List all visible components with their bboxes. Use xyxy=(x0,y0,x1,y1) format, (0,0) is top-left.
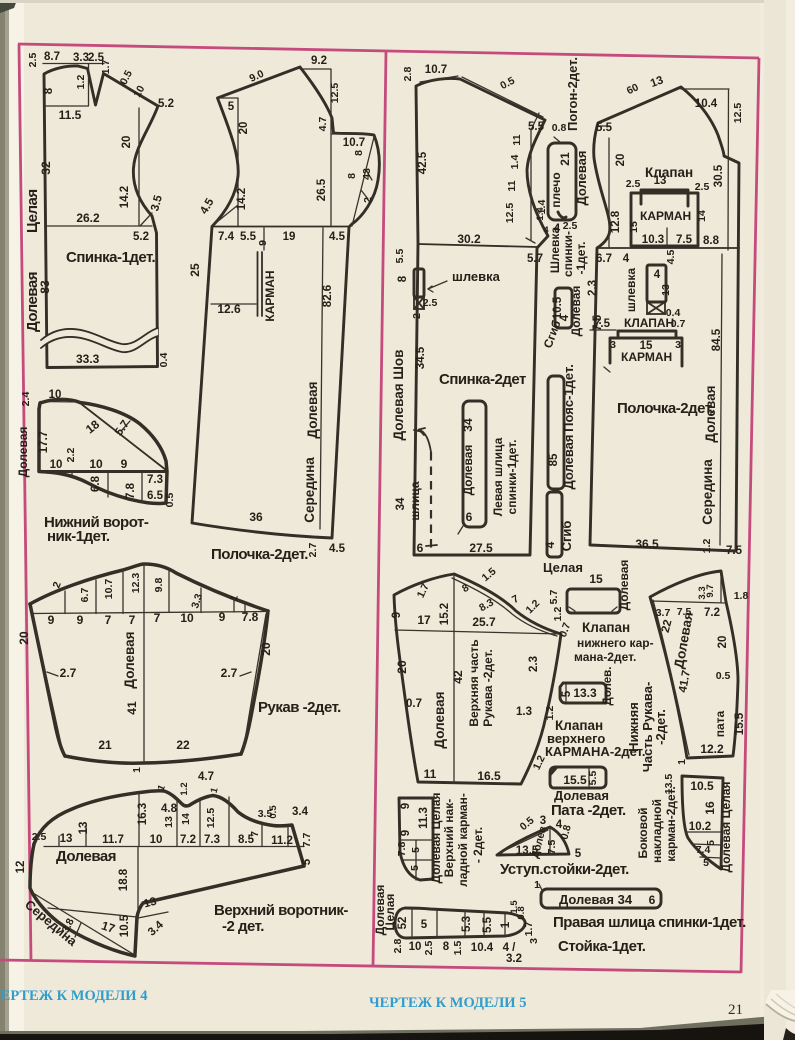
svg-text:10: 10 xyxy=(49,389,62,401)
svg-text:Стойка-1дет.: Стойка-1дет. xyxy=(558,938,646,955)
svg-text:1: 1 xyxy=(676,759,688,765)
svg-text:ладной карман-: ладной карман- xyxy=(456,793,470,887)
svg-text:9.2: 9.2 xyxy=(311,55,327,67)
svg-text:21: 21 xyxy=(728,1002,743,1018)
svg-text:36.5: 36.5 xyxy=(635,537,659,551)
svg-text:-1дет.: -1дет. xyxy=(574,242,588,275)
svg-text:8: 8 xyxy=(443,941,450,953)
svg-text:Долевая: Долевая xyxy=(561,435,576,490)
svg-text:16: 16 xyxy=(703,801,717,815)
svg-text:Долевая: Долевая xyxy=(554,788,609,803)
svg-text:52: 52 xyxy=(397,917,409,930)
svg-text:9: 9 xyxy=(400,830,412,836)
svg-text:накладной: накладной xyxy=(650,799,664,863)
svg-text:14: 14 xyxy=(180,813,192,825)
svg-text:плечо: плечо xyxy=(549,172,563,207)
svg-text:25.7: 25.7 xyxy=(472,615,496,629)
svg-text:5.2: 5.2 xyxy=(133,231,149,243)
svg-text:4: 4 xyxy=(654,269,661,281)
svg-text:3.7: 3.7 xyxy=(656,607,671,619)
svg-text:5.5: 5.5 xyxy=(596,122,613,134)
svg-text:7: 7 xyxy=(249,831,261,837)
svg-text:3.3: 3.3 xyxy=(73,52,89,64)
svg-text:8.8: 8.8 xyxy=(703,235,720,247)
svg-text:2: 2 xyxy=(411,313,423,319)
svg-text:26.2: 26.2 xyxy=(76,211,100,225)
svg-text:Целая: Целая xyxy=(24,189,41,233)
svg-text:42.5: 42.5 xyxy=(417,151,429,174)
svg-text:1: 1 xyxy=(500,921,512,928)
svg-text:Долевая Целая: Долевая Целая xyxy=(429,793,443,884)
svg-text:Рукава -2дет.: Рукава -2дет. xyxy=(481,649,495,727)
svg-text:2.7: 2.7 xyxy=(307,543,319,558)
svg-text:20: 20 xyxy=(717,636,729,649)
svg-text:-2дет.: -2дет. xyxy=(653,709,668,745)
svg-text:1.3: 1.3 xyxy=(516,706,532,718)
svg-text:3: 3 xyxy=(528,938,540,944)
svg-text:9: 9 xyxy=(219,610,226,624)
svg-text:15.2: 15.2 xyxy=(439,603,451,625)
svg-text:9: 9 xyxy=(400,803,412,809)
svg-text:Левая шлица: Левая шлица xyxy=(491,437,505,516)
svg-text:3.2: 3.2 xyxy=(506,953,522,965)
svg-text:15.5: 15.5 xyxy=(563,773,587,787)
svg-text:11: 11 xyxy=(511,134,523,145)
svg-text:15: 15 xyxy=(640,340,653,352)
svg-text:Долевая: Долевая xyxy=(617,560,631,611)
svg-text:6.8: 6.8 xyxy=(90,475,102,492)
svg-text:20: 20 xyxy=(17,631,31,645)
svg-text:Пояс-1дет.: Пояс-1дет. xyxy=(561,364,576,432)
svg-text:4.7: 4.7 xyxy=(317,117,329,132)
svg-text:Долевая: Долевая xyxy=(461,445,475,496)
svg-text:7.7: 7.7 xyxy=(301,833,313,848)
svg-text:шлевка: шлевка xyxy=(624,268,638,313)
svg-text:1.2: 1.2 xyxy=(701,539,713,554)
svg-text:8: 8 xyxy=(397,275,409,282)
svg-text:10.5: 10.5 xyxy=(690,779,714,793)
svg-text:10: 10 xyxy=(89,457,103,471)
svg-text:12.8: 12.8 xyxy=(610,210,622,233)
svg-text:1.2: 1.2 xyxy=(552,607,564,622)
svg-text:10.5: 10.5 xyxy=(119,914,131,937)
svg-text:10: 10 xyxy=(50,459,63,471)
svg-text:4.5: 4.5 xyxy=(665,250,677,265)
svg-text:7.3: 7.3 xyxy=(204,834,220,846)
svg-text:12.2: 12.2 xyxy=(700,742,724,756)
svg-text:2.8: 2.8 xyxy=(402,67,414,82)
svg-text:42: 42 xyxy=(451,670,465,684)
svg-text:5: 5 xyxy=(409,865,421,871)
svg-text:7.8: 7.8 xyxy=(242,610,259,624)
svg-text:Спинка-2дет: Спинка-2дет xyxy=(439,371,526,388)
svg-text:0.5: 0.5 xyxy=(716,670,731,682)
svg-text:5: 5 xyxy=(228,101,235,113)
svg-text:1.8: 1.8 xyxy=(734,590,749,602)
svg-text:7.5: 7.5 xyxy=(676,234,693,246)
svg-text:7.8: 7.8 xyxy=(396,842,408,857)
svg-text:6.5: 6.5 xyxy=(147,490,164,502)
svg-text:12.6: 12.6 xyxy=(217,302,241,316)
svg-text:6: 6 xyxy=(649,893,656,907)
svg-text:1.4: 1.4 xyxy=(509,155,521,170)
svg-text:6.7: 6.7 xyxy=(596,253,612,265)
svg-text:4.5: 4.5 xyxy=(329,543,346,555)
svg-text:8.7: 8.7 xyxy=(44,51,60,63)
svg-text:Полочка-2дет.: Полочка-2дет. xyxy=(617,400,714,417)
svg-text:5.5: 5.5 xyxy=(394,249,406,264)
svg-text:Долевая: Долевая xyxy=(432,691,447,748)
svg-text:41: 41 xyxy=(125,701,139,715)
svg-text:11: 11 xyxy=(424,767,437,781)
svg-text:7.2: 7.2 xyxy=(704,607,720,619)
svg-text:13: 13 xyxy=(163,816,175,828)
svg-text:5.7: 5.7 xyxy=(548,590,560,605)
svg-text:34: 34 xyxy=(461,418,475,432)
svg-text:5: 5 xyxy=(561,690,573,697)
svg-text:Долевая Шов: Долевая Шов xyxy=(391,350,406,441)
svg-text:КАРМАН: КАРМАН xyxy=(640,209,691,223)
svg-text:12.5: 12.5 xyxy=(504,203,516,224)
svg-text:22: 22 xyxy=(176,738,190,752)
svg-text:25: 25 xyxy=(188,263,202,277)
svg-text:13: 13 xyxy=(60,833,73,845)
svg-text:2.3: 2.3 xyxy=(528,656,540,672)
svg-text:Погон-2дет.: Погон-2дет. xyxy=(565,57,580,131)
svg-text:9: 9 xyxy=(391,612,403,618)
svg-text:4.5: 4.5 xyxy=(329,231,346,243)
svg-text:10.2: 10.2 xyxy=(689,821,711,833)
svg-text:36: 36 xyxy=(249,510,263,524)
svg-text:7.2: 7.2 xyxy=(180,834,196,846)
svg-text:Середина: Середина xyxy=(700,459,715,525)
svg-text:2.7: 2.7 xyxy=(60,666,77,680)
svg-text:6: 6 xyxy=(417,541,424,555)
svg-text:15: 15 xyxy=(628,221,640,233)
svg-text:Спинка-1дет.: Спинка-1дет. xyxy=(66,249,156,266)
svg-text:11.5: 11.5 xyxy=(59,108,82,122)
svg-text:Нижняя: Нижняя xyxy=(626,702,641,752)
svg-text:3.4: 3.4 xyxy=(292,806,309,818)
svg-text:17: 17 xyxy=(417,613,431,627)
svg-text:43: 43 xyxy=(361,168,373,180)
svg-text:Долевая: Долевая xyxy=(56,848,116,865)
svg-text:нижнего кар-: нижнего кар- xyxy=(577,636,654,650)
svg-text:13: 13 xyxy=(78,822,90,835)
svg-text:2.4: 2.4 xyxy=(20,392,32,407)
svg-text:Верхний нак-: Верхний нак- xyxy=(442,799,456,877)
svg-text:1.4: 1.4 xyxy=(536,200,548,215)
svg-text:7.5: 7.5 xyxy=(726,545,743,557)
svg-text:82.6: 82.6 xyxy=(322,285,334,307)
svg-text:7: 7 xyxy=(105,613,112,627)
svg-text:1.2: 1.2 xyxy=(179,782,190,795)
svg-text:2.5: 2.5 xyxy=(27,53,39,68)
svg-text:2.5: 2.5 xyxy=(423,297,438,309)
svg-text:13.3: 13.3 xyxy=(573,686,597,700)
svg-text:3: 3 xyxy=(610,339,616,351)
svg-text:5.5: 5.5 xyxy=(240,231,257,243)
svg-text:12.5: 12.5 xyxy=(329,83,341,104)
svg-text:5.5: 5.5 xyxy=(482,916,494,933)
svg-text:20: 20 xyxy=(259,642,273,656)
svg-text:33.3: 33.3 xyxy=(76,352,100,366)
svg-text:85: 85 xyxy=(548,453,560,466)
svg-text:1.7: 1.7 xyxy=(100,60,112,75)
svg-text:5: 5 xyxy=(301,858,313,865)
svg-text:7.5: 7.5 xyxy=(546,840,558,855)
svg-text:15: 15 xyxy=(589,572,603,586)
svg-text:7.3: 7.3 xyxy=(147,474,163,486)
svg-text:20: 20 xyxy=(615,154,627,167)
svg-text:14: 14 xyxy=(696,210,708,222)
svg-text:1.5: 1.5 xyxy=(452,941,464,956)
svg-text:Долевая Целая: Долевая Целая xyxy=(719,782,733,873)
svg-text:10.4: 10.4 xyxy=(695,98,718,110)
svg-text:20: 20 xyxy=(395,660,409,674)
svg-text:5.3: 5.3 xyxy=(461,916,473,932)
svg-text:21: 21 xyxy=(98,738,112,752)
svg-text:19: 19 xyxy=(283,231,296,243)
svg-text:Клапан: Клапан xyxy=(582,620,630,635)
svg-text:9: 9 xyxy=(257,240,269,246)
svg-text:10: 10 xyxy=(409,941,422,953)
svg-text:34: 34 xyxy=(395,497,407,510)
svg-text:шлица: шлица xyxy=(408,481,422,521)
svg-text:1.7: 1.7 xyxy=(523,922,535,937)
svg-text:12.3: 12.3 xyxy=(130,573,142,594)
svg-text:2.8: 2.8 xyxy=(392,939,404,954)
svg-text:Рукав -2дет.: Рукав -2дет. xyxy=(258,699,341,716)
svg-text:карман-2дет.: карман-2дет. xyxy=(664,786,678,861)
svg-text:Правая шлица спинки-1дет.: Правая шлица спинки-1дет. xyxy=(553,914,746,931)
svg-text:ЧЕРТЕЖ К МОДЕЛИ 5: ЧЕРТЕЖ К МОДЕЛИ 5 xyxy=(369,995,526,1011)
svg-text:18.8: 18.8 xyxy=(118,868,130,891)
svg-text:2.5: 2.5 xyxy=(32,831,47,843)
svg-text:ЧЕРТЕЖ К МОДЕЛИ 4: ЧЕРТЕЖ К МОДЕЛИ 4 xyxy=(0,988,147,1004)
svg-text:Целая: Целая xyxy=(543,560,583,575)
svg-text:3: 3 xyxy=(675,339,681,351)
svg-text:1.2: 1.2 xyxy=(75,75,87,90)
svg-text:12: 12 xyxy=(15,861,27,874)
svg-text:10.7: 10.7 xyxy=(343,137,365,149)
svg-text:9.7: 9.7 xyxy=(705,584,716,597)
svg-text:Верхний воротник-: Верхний воротник- xyxy=(214,902,348,919)
svg-text:Полочка-2дет.: Полочка-2дет. xyxy=(211,546,308,563)
svg-text:20: 20 xyxy=(121,136,133,149)
svg-text:0.5: 0.5 xyxy=(164,493,176,508)
svg-text:5: 5 xyxy=(703,857,709,869)
svg-text:10.3: 10.3 xyxy=(642,234,664,246)
svg-text:16.3: 16.3 xyxy=(137,803,149,825)
svg-text:5: 5 xyxy=(705,840,717,846)
svg-text:11.2: 11.2 xyxy=(271,835,293,847)
svg-text:0.5: 0.5 xyxy=(268,805,279,819)
svg-text:Долевая: Долевая xyxy=(703,385,718,442)
svg-text:5.5: 5.5 xyxy=(528,121,545,133)
svg-text:3: 3 xyxy=(540,815,546,827)
svg-text:Пата -2дет.: Пата -2дет. xyxy=(551,802,626,819)
svg-text:Верхняя часть: Верхняя часть xyxy=(467,639,481,726)
svg-text:2: 2 xyxy=(362,197,374,203)
svg-text:Долевая: Долевая xyxy=(24,272,41,332)
svg-text:13: 13 xyxy=(660,284,672,296)
svg-text:12.5: 12.5 xyxy=(205,808,217,829)
svg-text:Клапан: Клапан xyxy=(645,165,693,180)
svg-text:Долевая 34: Долевая 34 xyxy=(559,892,633,907)
svg-text:14.2: 14.2 xyxy=(119,186,131,208)
svg-text:2.5: 2.5 xyxy=(695,181,710,193)
svg-text:Долевая: Долевая xyxy=(305,381,320,438)
svg-text:7: 7 xyxy=(129,613,136,627)
svg-text:Боковой: Боковой xyxy=(636,807,650,858)
svg-text:6: 6 xyxy=(466,510,473,524)
svg-text:- 2дет.: - 2дет. xyxy=(471,827,485,863)
svg-text:10.7: 10.7 xyxy=(425,64,447,76)
svg-text:Середина: Середина xyxy=(302,457,317,523)
svg-text:1: 1 xyxy=(131,767,143,773)
svg-text:27.5: 27.5 xyxy=(469,541,493,555)
svg-text:32: 32 xyxy=(39,161,53,175)
svg-text:8: 8 xyxy=(353,150,365,156)
svg-text:10: 10 xyxy=(150,834,163,846)
svg-text:11.7: 11.7 xyxy=(102,834,124,846)
svg-text:КАРМАН: КАРМАН xyxy=(263,270,277,321)
svg-text:Долевая: Долевая xyxy=(16,427,30,478)
svg-text:Долев.: Долев. xyxy=(602,667,614,706)
svg-text:5: 5 xyxy=(410,847,422,853)
svg-text:мана-2дет.: мана-2дет. xyxy=(574,650,636,664)
svg-text:4: 4 xyxy=(543,541,557,548)
svg-text:30.2: 30.2 xyxy=(457,232,481,246)
svg-text:2.5: 2.5 xyxy=(423,941,435,956)
svg-text:4: 4 xyxy=(623,253,630,265)
svg-text:20: 20 xyxy=(238,122,250,135)
svg-text:9: 9 xyxy=(121,457,128,471)
svg-text:5: 5 xyxy=(575,848,582,860)
svg-text:8: 8 xyxy=(43,87,55,94)
svg-text:9.8: 9.8 xyxy=(153,578,165,593)
svg-text:10.7: 10.7 xyxy=(103,579,115,600)
svg-text:Целая: Целая xyxy=(383,894,397,931)
svg-text:спинки-: спинки- xyxy=(561,231,575,277)
svg-text:спинки-1дет.: спинки-1дет. xyxy=(505,440,519,515)
svg-text:0.7: 0.7 xyxy=(406,698,422,710)
svg-text:Долевая: Долевая xyxy=(574,151,589,206)
svg-text:34.5: 34.5 xyxy=(415,346,427,369)
svg-text:4.8: 4.8 xyxy=(161,803,178,815)
svg-text:0.8: 0.8 xyxy=(516,906,527,919)
svg-text:5: 5 xyxy=(421,919,428,931)
svg-text:7: 7 xyxy=(154,611,161,625)
svg-text:КЛАПАН: КЛАПАН xyxy=(624,316,674,330)
svg-text:10: 10 xyxy=(180,611,194,625)
svg-text:КАРМАН: КАРМАН xyxy=(621,350,672,364)
svg-text:пата: пата xyxy=(713,710,727,737)
svg-text:Долевая: Долевая xyxy=(122,631,137,688)
svg-text:9: 9 xyxy=(77,613,84,627)
svg-text:11: 11 xyxy=(506,180,518,191)
svg-text:2.3: 2.3 xyxy=(587,280,599,296)
svg-text:-2 дет.: -2 дет. xyxy=(222,918,264,935)
svg-text:15.5: 15.5 xyxy=(734,712,746,735)
svg-text:7.4: 7.4 xyxy=(218,231,235,243)
svg-text:30.5: 30.5 xyxy=(713,164,725,187)
svg-text:26.5: 26.5 xyxy=(316,178,328,201)
svg-text:2.7: 2.7 xyxy=(221,666,238,680)
svg-text:Сгиб: Сгиб xyxy=(559,521,574,552)
svg-text:16.5: 16.5 xyxy=(477,769,501,783)
svg-text:12.5: 12.5 xyxy=(732,103,744,124)
svg-text:13: 13 xyxy=(654,175,667,187)
svg-text:4.7: 4.7 xyxy=(198,771,214,783)
svg-text:5.2: 5.2 xyxy=(158,98,174,110)
svg-text:Уступ.стойки-2дет.: Уступ.стойки-2дет. xyxy=(500,861,629,878)
svg-text:9: 9 xyxy=(48,613,55,627)
svg-text:2.2: 2.2 xyxy=(65,448,77,463)
svg-text:ник-1дет.: ник-1дет. xyxy=(47,528,110,545)
svg-text:шлевка: шлевка xyxy=(452,269,501,284)
svg-text:6.7: 6.7 xyxy=(79,588,91,603)
svg-text:0.8: 0.8 xyxy=(552,122,567,134)
svg-text:7.8: 7.8 xyxy=(125,482,137,499)
svg-text:17.7: 17.7 xyxy=(38,431,50,453)
svg-text:Шлевка: Шлевка xyxy=(548,227,562,274)
svg-text:21: 21 xyxy=(558,152,572,166)
svg-text:7.5: 7.5 xyxy=(592,314,604,331)
svg-text:8: 8 xyxy=(346,173,358,179)
svg-text:5.5: 5.5 xyxy=(587,771,599,786)
svg-text:0.4: 0.4 xyxy=(158,353,170,368)
svg-text:Долевая: Долевая xyxy=(569,286,583,337)
svg-text:2.5: 2.5 xyxy=(626,178,641,190)
svg-text:2.5: 2.5 xyxy=(563,220,578,232)
svg-text:5.7: 5.7 xyxy=(527,253,543,265)
svg-text:14.2: 14.2 xyxy=(236,188,248,210)
svg-text:84.5: 84.5 xyxy=(711,328,723,351)
svg-text:10.4: 10.4 xyxy=(471,942,494,954)
